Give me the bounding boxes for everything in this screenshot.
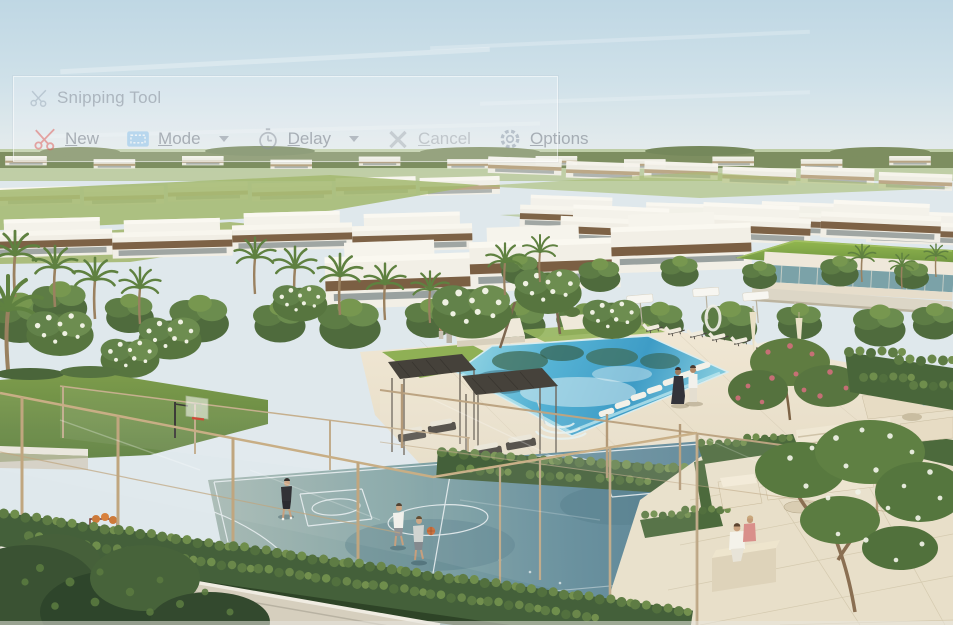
gear-icon [497, 126, 523, 152]
scissors-icon [32, 126, 58, 152]
snipping-tool-window: Snipping Tool New Mode [13, 76, 558, 162]
cancel-label: Cancel [418, 129, 471, 149]
options-label: Options [530, 129, 589, 149]
options-button[interactable]: Options [484, 121, 602, 157]
mode-dropdown-caret-icon[interactable] [219, 136, 229, 142]
snipping-tool-toolbar: New Mode [14, 119, 557, 159]
delay-button[interactable]: Delay [242, 121, 372, 157]
window-title: Snipping Tool [57, 88, 161, 108]
hoop-rim [192, 418, 204, 420]
mode-icon [125, 126, 151, 152]
mode-button[interactable]: Mode [112, 121, 242, 157]
bottom-strip [0, 621, 953, 625]
snipping-tool-logo-icon [28, 87, 50, 109]
delay-dropdown-caret-icon[interactable] [349, 136, 359, 142]
cancel-button[interactable]: Cancel [372, 121, 484, 157]
clock-icon [255, 126, 281, 152]
new-label: New [65, 129, 99, 149]
delay-label: Delay [288, 129, 331, 149]
cancel-x-icon [385, 126, 411, 152]
mode-label: Mode [158, 129, 201, 149]
snipping-tool-titlebar[interactable]: Snipping Tool [14, 77, 557, 119]
new-button[interactable]: New [19, 121, 112, 157]
